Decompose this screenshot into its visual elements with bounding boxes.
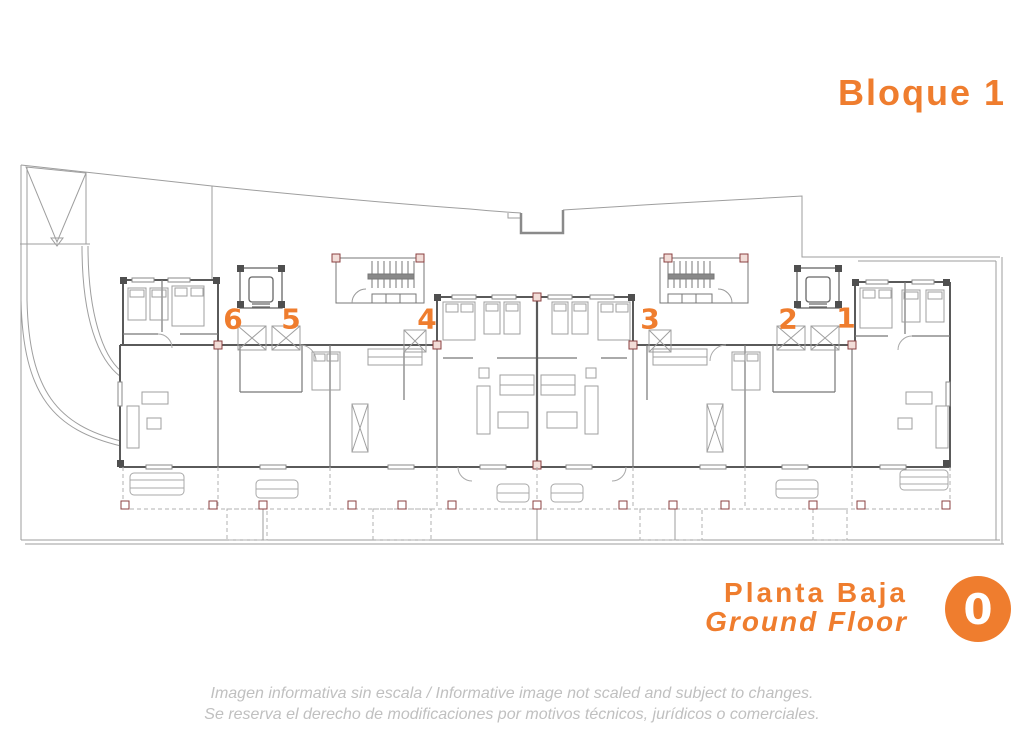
floor-title-es: Planta Baja (705, 578, 908, 607)
floor-number-badge: 0 (945, 576, 1011, 642)
floor-title-en: Ground Floor (705, 607, 908, 636)
terrace-structure (263, 509, 675, 540)
outdoor-tables (130, 470, 948, 502)
terrace-columns (121, 501, 950, 509)
disclaimer: Imagen informativa sin escala / Informat… (60, 683, 964, 725)
apartment-label-6: 6 (223, 303, 242, 336)
disclaimer-line-2: Se reserva el derecho de modificaciones … (60, 704, 964, 725)
apartment-label-2: 2 (778, 303, 797, 336)
floor-plan-page: Bloque 1 (0, 0, 1024, 732)
apartment-label-5: 5 (281, 303, 300, 336)
boundary-notch (521, 210, 563, 233)
driveway-marker (20, 167, 90, 246)
apartment-label-3: 3 (640, 303, 659, 336)
apartment-label-4: 4 (417, 303, 436, 336)
floor-title: Planta Baja Ground Floor (705, 578, 908, 636)
apartment-label-1: 1 (836, 302, 855, 335)
disclaimer-line-1: Imagen informativa sin escala / Informat… (60, 683, 964, 704)
